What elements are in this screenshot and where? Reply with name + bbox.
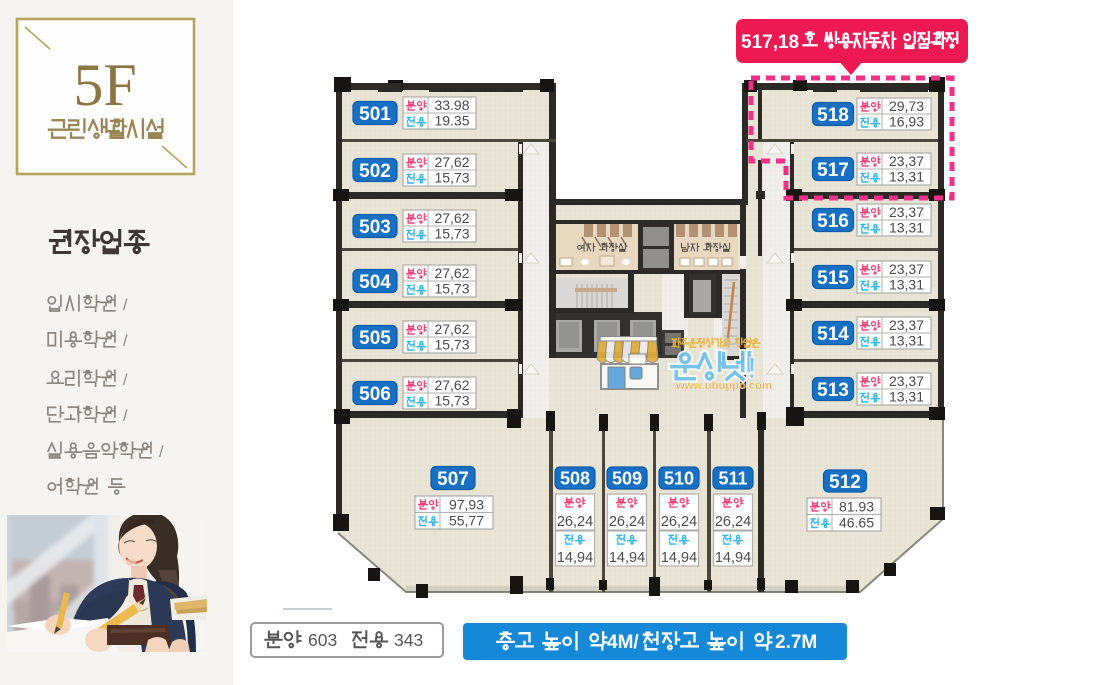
svg-text:512: 512 [829, 472, 861, 493]
svg-text:23,37: 23,37 [889, 373, 924, 389]
svg-text:511: 511 [718, 469, 747, 489]
svg-text:507: 507 [437, 469, 469, 490]
svg-text:603: 603 [308, 630, 337, 650]
svg-text:/: / [123, 372, 128, 389]
svg-text:81.93: 81.93 [839, 498, 874, 514]
svg-text:508: 508 [560, 469, 590, 489]
svg-text:13,31: 13,31 [889, 219, 924, 235]
svg-text:26,24: 26,24 [557, 514, 593, 530]
svg-text:505: 505 [359, 328, 391, 349]
svg-text:www.ubuppo.com: www.ubuppo.com [675, 380, 772, 392]
svg-text:15,73: 15,73 [434, 392, 469, 408]
svg-text:23,37: 23,37 [889, 204, 924, 220]
svg-text:15,73: 15,73 [434, 280, 469, 296]
svg-text:/: / [159, 444, 164, 461]
svg-text:23,37: 23,37 [889, 317, 924, 333]
svg-text:517,18: 517,18 [741, 32, 799, 53]
svg-text:13,31: 13,31 [889, 276, 924, 292]
svg-text:514: 514 [817, 324, 849, 345]
svg-text:23,37: 23,37 [889, 261, 924, 277]
svg-text:/: / [123, 297, 128, 314]
svg-text:513: 513 [817, 380, 849, 401]
svg-text:343: 343 [394, 630, 423, 650]
svg-text:27,62: 27,62 [434, 377, 469, 393]
svg-text:27,62: 27,62 [434, 154, 469, 170]
svg-text:13,31: 13,31 [889, 168, 924, 184]
svg-text:15,73: 15,73 [434, 225, 469, 241]
svg-text:46.65: 46.65 [839, 514, 874, 530]
svg-text:55,77: 55,77 [449, 512, 484, 528]
svg-text:13,31: 13,31 [889, 332, 924, 348]
svg-text:19.35: 19.35 [434, 112, 469, 128]
svg-text:/: / [123, 333, 128, 350]
svg-text:15,73: 15,73 [434, 169, 469, 185]
svg-text:503: 503 [359, 217, 391, 238]
svg-text:517: 517 [817, 160, 849, 181]
svg-text:97,93: 97,93 [449, 496, 484, 512]
svg-text:501: 501 [359, 104, 391, 125]
svg-text:/: / [123, 408, 128, 425]
svg-text:27,62: 27,62 [434, 321, 469, 337]
svg-text:26,24: 26,24 [609, 514, 645, 530]
svg-text:26,24: 26,24 [661, 514, 697, 530]
svg-text:26,24: 26,24 [715, 514, 751, 530]
svg-text:506: 506 [359, 384, 391, 405]
svg-text:?: ? [750, 338, 756, 350]
svg-text:515: 515 [817, 268, 849, 289]
svg-text:4M/: 4M/ [607, 632, 639, 653]
svg-text:33.98: 33.98 [434, 97, 469, 113]
svg-text:509: 509 [612, 469, 642, 489]
svg-text:16,93: 16,93 [889, 113, 924, 129]
svg-text:15,73: 15,73 [434, 336, 469, 352]
svg-text:13,31: 13,31 [889, 388, 924, 404]
svg-text:14,94: 14,94 [609, 550, 645, 566]
svg-text:14,94: 14,94 [715, 550, 751, 566]
svg-text:14,94: 14,94 [661, 550, 697, 566]
svg-text:23,37: 23,37 [889, 153, 924, 169]
svg-text:14,94: 14,94 [557, 550, 593, 566]
svg-text:29,73: 29,73 [889, 98, 924, 114]
svg-text:502: 502 [359, 161, 391, 182]
svg-text:2.7M: 2.7M [775, 632, 817, 653]
svg-text:516: 516 [817, 211, 849, 232]
svg-text:5F: 5F [73, 52, 136, 118]
svg-text:27,62: 27,62 [434, 210, 469, 226]
svg-text:27,62: 27,62 [434, 265, 469, 281]
svg-text:518: 518 [817, 105, 849, 126]
svg-text:510: 510 [664, 469, 694, 489]
svg-text:504: 504 [359, 272, 391, 293]
